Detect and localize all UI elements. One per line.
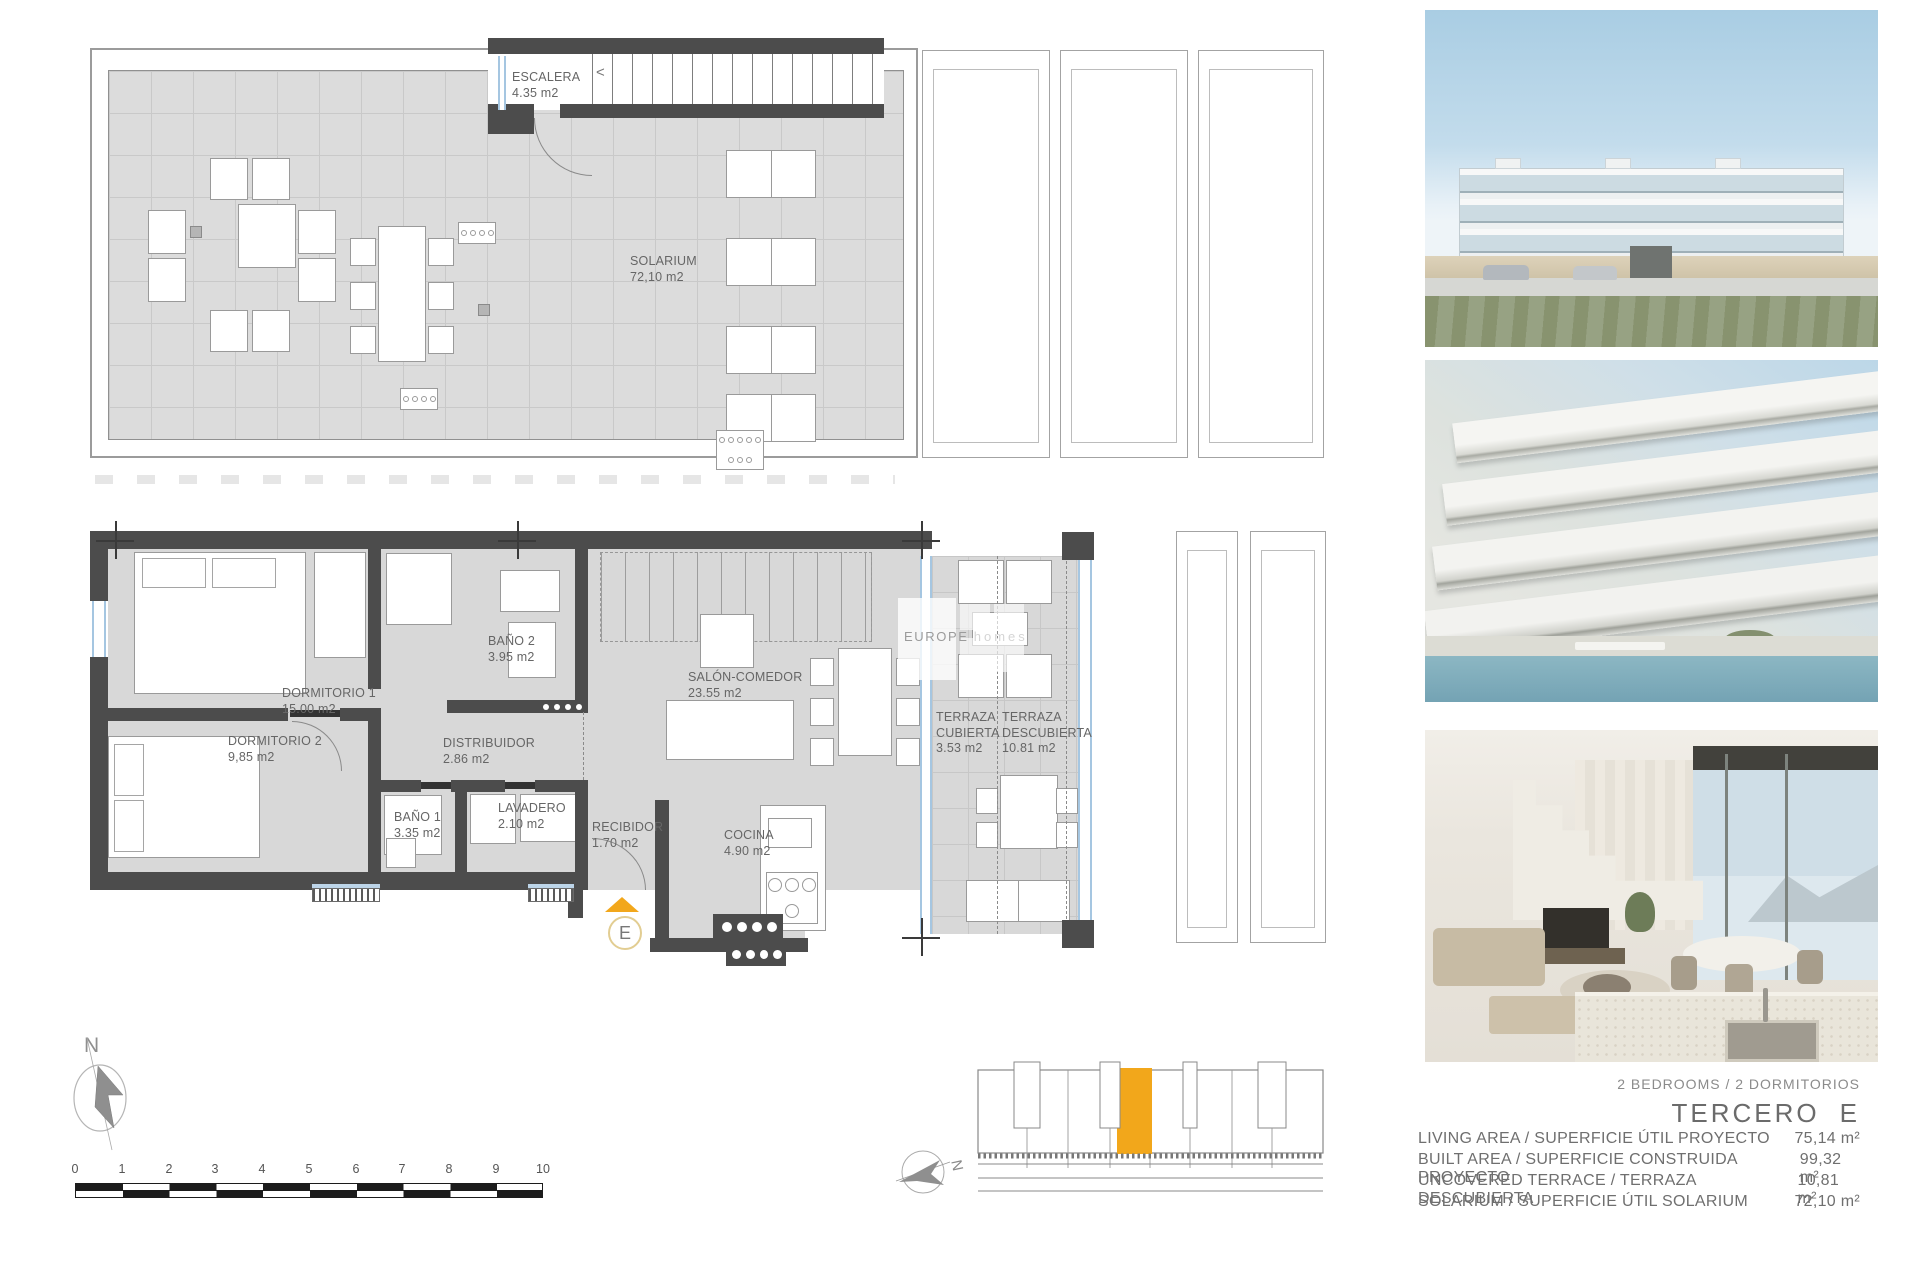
room-label-escalera: ESCALERA 4.35 m2 — [512, 70, 580, 101]
door-leaf — [421, 782, 451, 789]
solarium-chair — [148, 210, 186, 254]
keyplan-building-outline — [978, 1070, 1323, 1153]
terrace-lounger — [966, 880, 1070, 922]
photo-interior-living — [1425, 730, 1878, 1062]
stair-treads — [592, 54, 884, 104]
keyplan-notch — [1100, 1062, 1120, 1128]
stair-direction-arrow: < — [596, 64, 605, 83]
scale-tick: 10 — [533, 1162, 553, 1176]
corner-column — [1062, 532, 1094, 560]
room-label-lavadero: LAVADERO2.10 m2 — [498, 801, 566, 832]
vent-icon — [478, 304, 490, 316]
hedge — [1425, 296, 1878, 347]
room-label-distribuidor: DISTRIBUIDOR2.86 m2 — [443, 736, 535, 767]
scale-tick: 7 — [392, 1162, 412, 1176]
roof-box — [1605, 158, 1631, 169]
dining-chair — [896, 738, 920, 766]
scale-tick: 6 — [346, 1162, 366, 1176]
dining-chair — [1671, 956, 1697, 990]
room-label-terraza-descubierta: TERRAZA DESCUBIERTA10.81 m2 — [1002, 710, 1092, 757]
ottoman — [1489, 996, 1587, 1034]
pillow — [114, 744, 144, 796]
watermark: EUROPE homes — [898, 598, 1032, 680]
dining-chair — [896, 698, 920, 726]
tv-unit — [700, 614, 754, 668]
keyplan-compass-circle — [902, 1151, 944, 1193]
scale-tick: 1 — [112, 1162, 132, 1176]
solarium-chair — [350, 326, 376, 354]
room-label-terraza-cubierta: TERRAZA CUBIERTA3.53 m2 — [936, 710, 998, 757]
wall-bath2-right — [575, 549, 588, 712]
scale-tick: 8 — [439, 1162, 459, 1176]
compass-needle-line — [87, 1038, 112, 1150]
pillow — [142, 558, 206, 588]
bedrooms-line: 2 BEDROOMS / 2 DORMITORIOS — [1418, 1076, 1860, 1092]
solarium-chair — [148, 258, 186, 302]
scale-tick: 0 — [65, 1162, 85, 1176]
sink-bath2 — [500, 570, 560, 612]
sofa — [666, 700, 794, 760]
solarium-chair — [428, 238, 454, 266]
compass-circle — [74, 1065, 126, 1131]
plant — [1625, 892, 1655, 932]
room-label-bano-1: BAÑO 13.35 m2 — [394, 810, 441, 841]
room-label-bano-2: BAÑO 23.95 m2 — [488, 634, 535, 665]
dining-chair — [810, 698, 834, 726]
dining-chair — [1797, 950, 1823, 984]
wall-dorm1-right — [368, 549, 381, 689]
building-facade — [1459, 168, 1844, 258]
stair-wall-bottom — [560, 104, 884, 118]
keyplan-compass-arrow-icon — [899, 1160, 944, 1185]
dining-chair — [810, 658, 834, 686]
road — [1425, 278, 1878, 298]
pillow — [212, 558, 276, 588]
axis-cross — [498, 521, 536, 559]
solarium-chair — [210, 158, 248, 200]
vent-icon — [190, 226, 202, 238]
planter-box — [716, 430, 764, 470]
car — [1483, 265, 1529, 280]
wall-left — [90, 657, 108, 890]
neighbor-roof-outline — [922, 50, 1050, 458]
scale-bar-row — [75, 1190, 543, 1198]
solarium-chair — [298, 258, 336, 302]
kitchen-sink — [1725, 1020, 1819, 1062]
north-label: N — [84, 1034, 99, 1057]
solarium-chair — [252, 310, 290, 352]
floor-title: TERCEROE — [1418, 1098, 1860, 1129]
wall-bedroom-divider — [108, 708, 288, 721]
compass-arrow-icon — [95, 1066, 123, 1128]
scale-tick: 2 — [159, 1162, 179, 1176]
wall-hall-bottom — [451, 780, 505, 792]
door-leaf — [505, 782, 535, 789]
solarium-chair — [210, 310, 248, 352]
entry-step-dots — [732, 947, 782, 961]
solarium-chair — [428, 326, 454, 354]
faucet — [1763, 988, 1768, 1022]
room-label-solarium: SOLARIUM 72,10 m2 — [630, 254, 697, 285]
level-shadow-line — [95, 475, 895, 484]
keyplan-notch — [1258, 1062, 1286, 1128]
brochure-page: < ESCALERA 4.35 m2 SOLARIUM 72,10 m2 — [0, 0, 1920, 1280]
terrace-chair — [1056, 822, 1078, 848]
window-rail — [528, 888, 574, 902]
stair-wall-corner — [488, 104, 534, 134]
neighbor-roof-outline — [1198, 50, 1324, 458]
solarium-chair — [298, 210, 336, 254]
terrace-dining-table — [1000, 775, 1058, 849]
room-label-recibidor: RECIBIDOR1.70 m2 — [592, 820, 663, 851]
tv — [1543, 908, 1609, 948]
terrace-chair — [976, 788, 998, 814]
wall-hall-bottom — [381, 780, 421, 792]
scale-tick: 9 — [486, 1162, 506, 1176]
keyplan-notch — [1014, 1062, 1040, 1128]
watermark-text: EUROPE homes — [904, 629, 1028, 644]
neighbor-unit-outline — [1176, 531, 1238, 943]
keyplan-north-label: N — [947, 1158, 966, 1172]
photo-building-exterior — [1425, 10, 1878, 347]
service-box — [400, 388, 438, 410]
keyplan-unit-highlight — [1117, 1068, 1152, 1154]
service-box — [458, 222, 496, 244]
pool — [1425, 656, 1878, 702]
keyplan-notch — [1183, 1062, 1197, 1128]
kitchen-sink — [768, 818, 812, 848]
roof-box — [1495, 158, 1521, 169]
spec-row: SOLARIUM / SUPERFICIE ÚTIL SOLARIUM72,10… — [1418, 1193, 1860, 1214]
wall-bath1-laundry — [455, 792, 467, 872]
axis-cross — [96, 521, 134, 559]
wardrobe-dorm1 — [314, 552, 366, 658]
keyplan-compass-line — [896, 1162, 950, 1181]
car — [1573, 266, 1617, 280]
pillow — [114, 800, 144, 852]
wall-laundry-hall — [575, 780, 588, 890]
roof-box — [1715, 158, 1741, 169]
sun-lounger-pair — [726, 150, 816, 198]
dining-table — [838, 648, 892, 756]
solarium-long-table — [378, 226, 426, 362]
room-label-cocina: COCINA4.90 m2 — [724, 828, 774, 859]
solarium-chair — [428, 282, 454, 310]
open-boundary — [583, 712, 584, 780]
spec-row: BUILT AREA / SUPERFICIE CONSTRUIDA PROYE… — [1418, 1151, 1860, 1172]
entry-step-dots — [721, 919, 777, 935]
sun-lounger-pair — [726, 238, 816, 286]
axis-cross — [902, 521, 940, 559]
terrace-chair — [976, 822, 998, 848]
pool-lounger — [1575, 642, 1665, 650]
sink-bath1 — [386, 838, 416, 868]
solarium-chair — [252, 158, 290, 200]
scale-tick: 5 — [299, 1162, 319, 1176]
spec-row: UNCOVERED TERRACE / TERRAZA DESCUBIERTA1… — [1418, 1172, 1860, 1193]
spec-table: LIVING AREA / SUPERFICIE ÚTIL PROYECTO75… — [1418, 1130, 1860, 1214]
solarium-chair — [350, 238, 376, 266]
photo-building-terraces — [1425, 360, 1878, 702]
entrance-marker: E — [608, 916, 642, 950]
stair-wall-top — [488, 38, 884, 54]
wall-dorm2-right — [368, 721, 381, 872]
window-rail — [312, 888, 380, 902]
entrance-kiosk — [1630, 246, 1672, 278]
room-label-dormitorio-1: DORMITORIO 115.00 m2 — [282, 686, 376, 717]
wall-dots — [540, 703, 584, 711]
axis-cross — [902, 918, 940, 956]
sofa — [1433, 928, 1545, 986]
room-label-salon-comedor: SALÓN-COMEDOR23.55 m2 — [688, 670, 802, 701]
terrace-chair — [1056, 788, 1078, 814]
shower-bath2 — [386, 553, 452, 625]
sun-lounger-pair — [726, 326, 816, 374]
spec-row: LIVING AREA / SUPERFICIE ÚTIL PROYECTO75… — [1418, 1130, 1860, 1151]
neighbor-roof-outline — [1060, 50, 1188, 458]
dining-chair — [810, 738, 834, 766]
entrance-arrow-icon — [605, 897, 639, 912]
bedroom-window — [92, 601, 106, 657]
corner-column — [1062, 920, 1094, 948]
scale-tick: 4 — [252, 1162, 272, 1176]
stair-window — [498, 56, 506, 110]
room-label-dormitorio-2: DORMITORIO 29,85 m2 — [228, 734, 322, 765]
solarium-table — [238, 204, 296, 268]
scale-tick: 3 — [205, 1162, 225, 1176]
solarium-chair — [350, 282, 376, 310]
neighbor-unit-outline — [1250, 531, 1326, 943]
